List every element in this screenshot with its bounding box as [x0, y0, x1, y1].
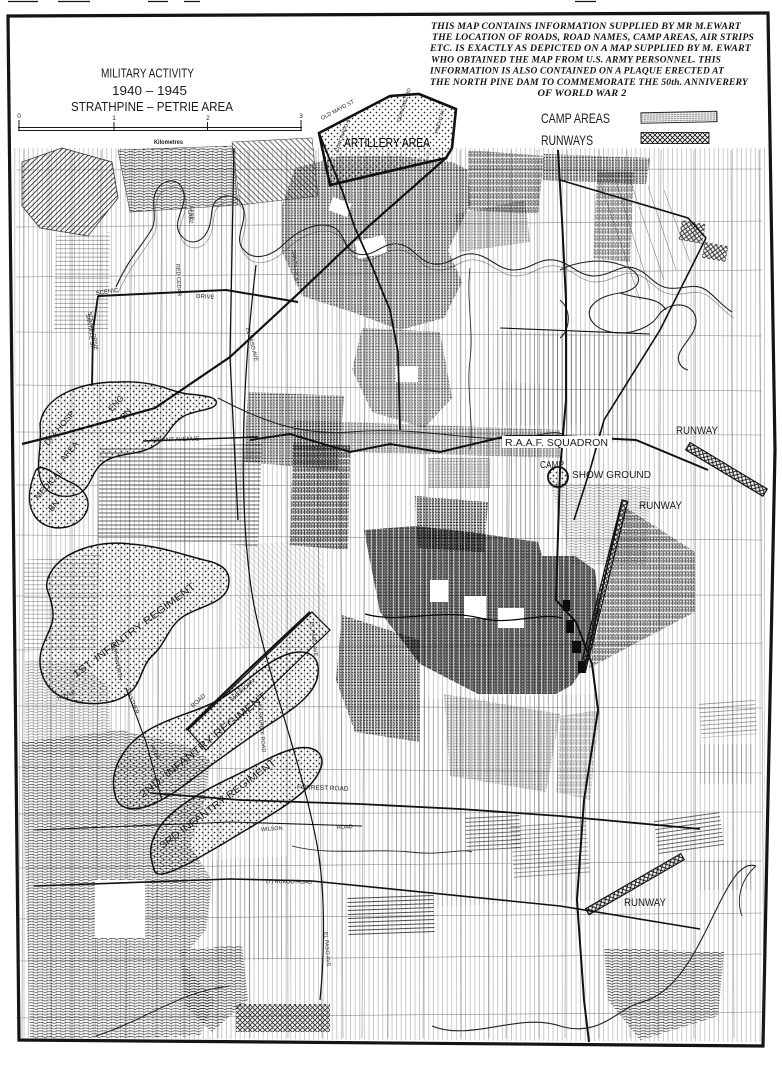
- svg-text:RUNWAY: RUNWAY: [639, 500, 683, 512]
- svg-text:DRIVE: DRIVE: [196, 294, 215, 301]
- svg-text:ETC. IS EXACTLY AS DEPICTED ON: ETC. IS EXACTLY AS DEPICTED ON A MAP SUP…: [429, 43, 752, 54]
- svg-text:WHO OBTAINED THE MAP FROM U.S.: WHO OBTAINED THE MAP FROM U.S. ARMY PERS…: [431, 54, 721, 65]
- svg-text:RUNWAYS: RUNWAYS: [541, 133, 593, 148]
- svg-text:CAMP AREAS: CAMP AREAS: [541, 111, 610, 126]
- svg-text:ROAD: ROAD: [337, 824, 353, 831]
- svg-text:INFORMATION IS ALSO CONTAINED: INFORMATION IS ALSO CONTAINED ON A PLAQU…: [429, 66, 725, 77]
- svg-text:WILSON: WILSON: [261, 826, 283, 833]
- svg-text:RUNWAY: RUNWAY: [624, 897, 667, 909]
- svg-text:1: 1: [112, 115, 116, 122]
- svg-text:3: 3: [299, 113, 303, 120]
- svg-text:Kilometres: Kilometres: [154, 139, 183, 146]
- svg-text:ARTILLERY AREA: ARTILLERY AREA: [344, 136, 431, 150]
- svg-text:2: 2: [206, 115, 210, 122]
- svg-text:STRATHPINE – PETRIE AREA: STRATHPINE – PETRIE AREA: [71, 99, 233, 114]
- svg-text:(T) HUKOO ROAD: (T) HUKOO ROAD: [266, 879, 312, 886]
- svg-text:THIS MAP CONTAINS INFORMATION: THIS MAP CONTAINS INFORMATION SUPPLIED B…: [431, 21, 742, 32]
- svg-text:LAKE: LAKE: [186, 210, 193, 225]
- svg-text:MILITARY ACTIVITY: MILITARY ACTIVITY: [101, 66, 194, 81]
- svg-text:THE NORTH PINE DAM TO COMMEMOR: THE NORTH PINE DAM TO COMMEMORATE THE 50…: [430, 77, 749, 88]
- svg-text:SHOW GROUND: SHOW GROUND: [572, 469, 651, 481]
- svg-text:1940 – 1945: 1940 – 1945: [112, 83, 187, 98]
- svg-text:R.A.A.F. SQUADRON: R.A.A.F. SQUADRON: [505, 437, 608, 449]
- svg-text:0: 0: [17, 113, 21, 120]
- svg-text:RUNWAY: RUNWAY: [676, 425, 719, 437]
- svg-text:THE LOCATION OF ROADS, ROAD NA: THE LOCATION OF ROADS, ROAD NAMES, CAMP …: [432, 32, 754, 43]
- svg-text:OF WORLD WAR 2: OF WORLD WAR 2: [538, 88, 627, 99]
